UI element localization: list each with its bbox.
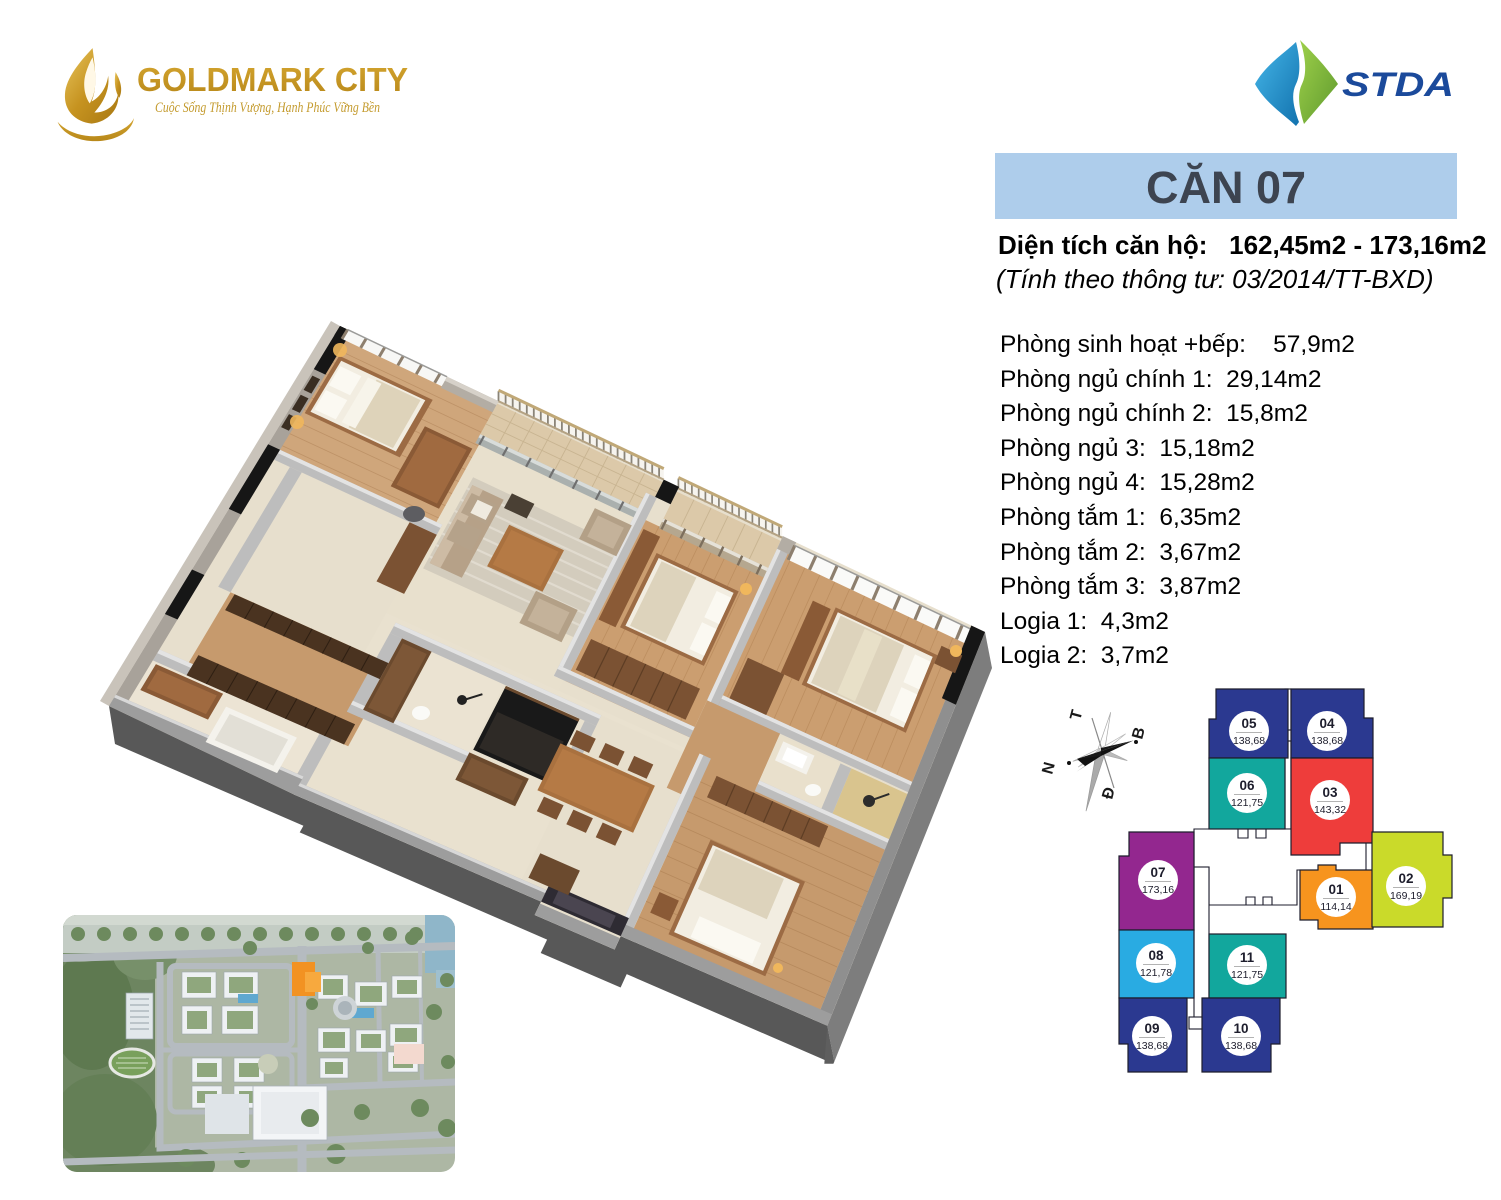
svg-text:121,78: 121,78 (1140, 967, 1172, 979)
svg-text:03: 03 (1322, 785, 1338, 800)
svg-text:02: 02 (1398, 871, 1413, 886)
svg-text:138,68: 138,68 (1311, 735, 1343, 747)
svg-text:114,14: 114,14 (1320, 901, 1351, 913)
svg-text:B: B (1129, 725, 1148, 741)
svg-text:173,16: 173,16 (1142, 884, 1174, 896)
svg-text:143,32: 143,32 (1314, 804, 1346, 816)
svg-text:121,75: 121,75 (1231, 969, 1263, 981)
svg-text:138,68: 138,68 (1233, 735, 1265, 747)
svg-text:138,68: 138,68 (1225, 1040, 1257, 1052)
svg-text:09: 09 (1144, 1021, 1159, 1036)
svg-text:10: 10 (1233, 1021, 1248, 1036)
svg-text:07: 07 (1150, 865, 1165, 880)
svg-text:Cuộc Sống Thịnh Vượng, Hạnh Ph: Cuộc Sống Thịnh Vượng, Hạnh Phúc Vững Bề… (155, 100, 380, 116)
svg-text:STDA: STDA (1342, 66, 1454, 104)
svg-text:06: 06 (1239, 778, 1255, 793)
svg-text:08: 08 (1148, 948, 1164, 963)
svg-text:11: 11 (1240, 950, 1255, 965)
svg-text:05: 05 (1241, 716, 1257, 731)
svg-text:T: T (1067, 708, 1086, 722)
svg-text:138,68: 138,68 (1136, 1040, 1168, 1052)
svg-text:Đ: Đ (1099, 785, 1118, 801)
svg-text:04: 04 (1319, 716, 1335, 731)
svg-text:01: 01 (1328, 882, 1344, 897)
svg-text:N: N (1039, 760, 1058, 776)
svg-text:121,75: 121,75 (1231, 797, 1263, 809)
svg-text:169,19: 169,19 (1390, 890, 1422, 902)
svg-text:GOLDMARK CITY: GOLDMARK CITY (137, 61, 408, 98)
